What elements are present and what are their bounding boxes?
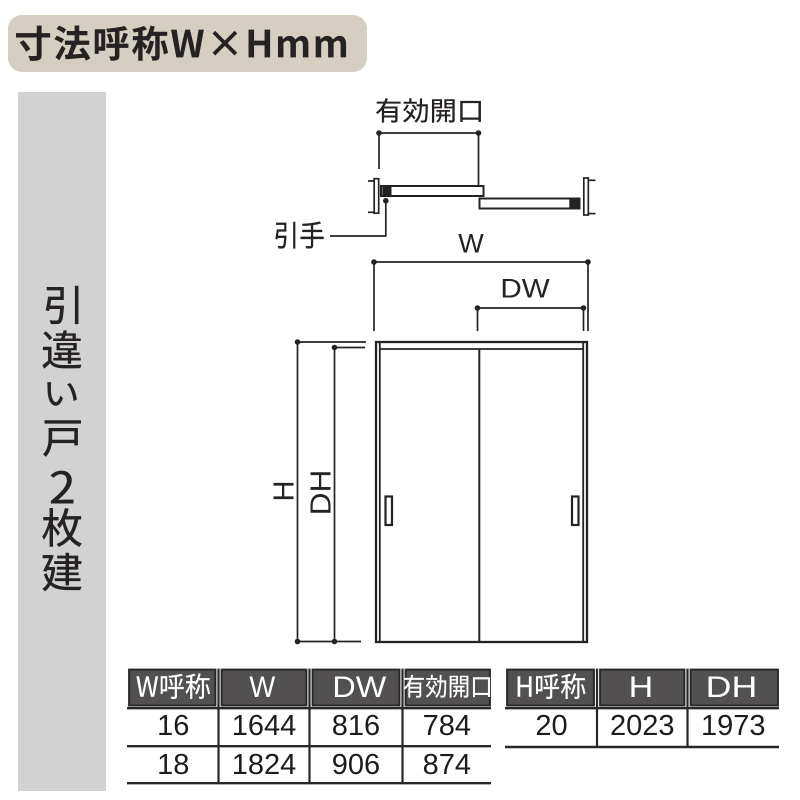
svg-text:1644: 1644 [232,710,297,742]
svg-text:816: 816 [332,710,380,742]
svg-text:2023: 2023 [610,710,675,742]
svg-text:1824: 1824 [232,749,297,781]
svg-text:874: 874 [423,749,471,781]
svg-text:DH: DH [706,671,758,704]
svg-text:DW: DW [332,671,387,704]
svg-text:W: W [249,671,276,704]
svg-text:1973: 1973 [701,710,766,742]
svg-text:16: 16 [157,710,189,742]
svg-text:20: 20 [535,710,567,742]
svg-text:784: 784 [423,710,471,742]
svg-text:H: H [629,671,654,704]
svg-text:W: W [458,228,484,258]
svg-text:DW: DW [500,273,550,303]
svg-text:H: H [268,481,300,502]
svg-text:906: 906 [332,749,380,781]
svg-text:DH: DH [305,470,337,516]
svg-text:18: 18 [157,749,189,781]
